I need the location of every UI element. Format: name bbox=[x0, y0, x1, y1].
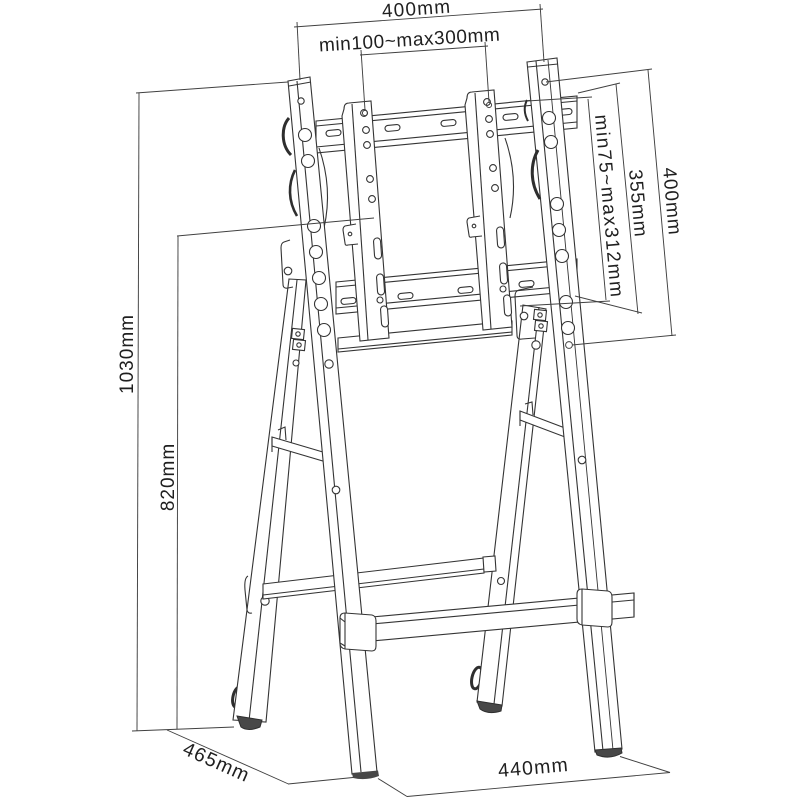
svg-text:820mm: 820mm bbox=[158, 443, 179, 511]
svg-text:1030mm: 1030mm bbox=[117, 314, 138, 394]
